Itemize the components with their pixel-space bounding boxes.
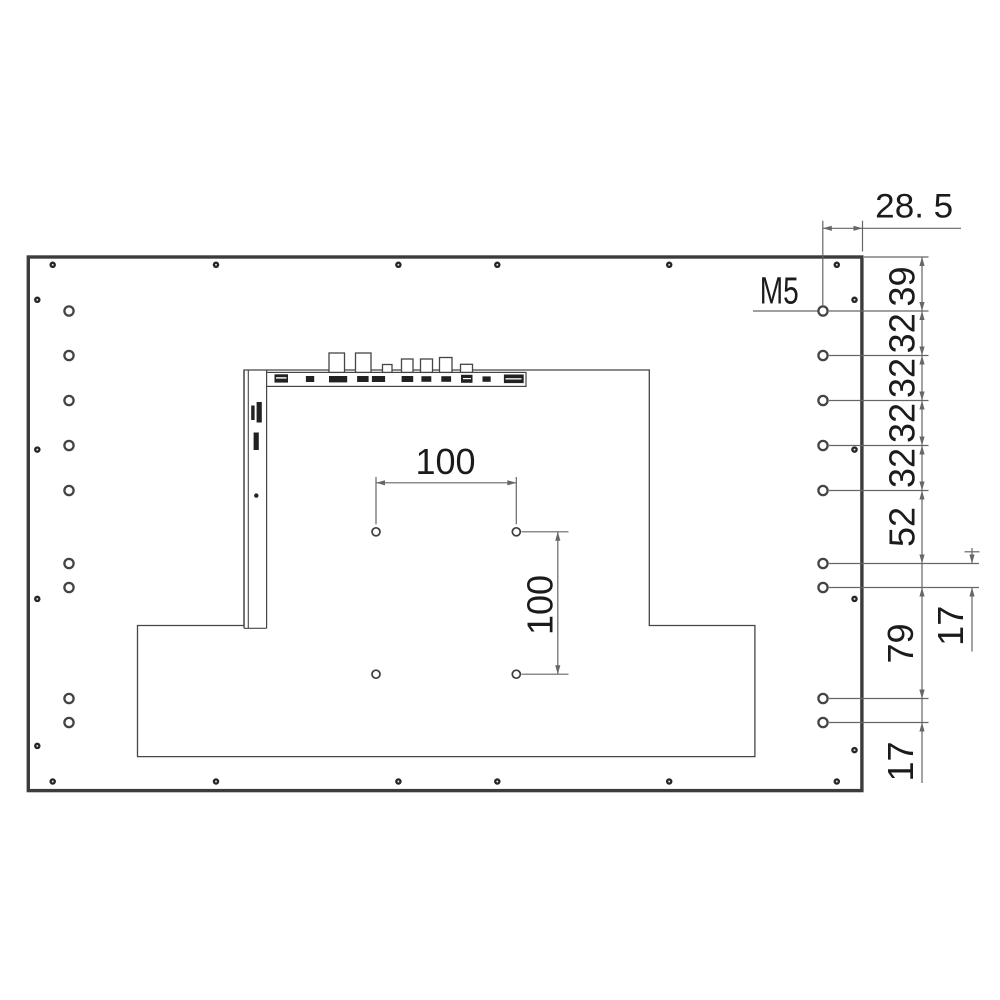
svg-text:17: 17 [880,741,921,781]
svg-text:79: 79 [880,623,921,663]
svg-text:39: 39 [881,266,922,306]
svg-text:17: 17 [930,606,971,646]
svg-text:32: 32 [882,448,923,488]
svg-text:32: 32 [882,358,923,398]
svg-text:M5: M5 [760,271,799,313]
svg-text:28. 5: 28. 5 [875,188,953,226]
svg-text:32: 32 [882,403,923,443]
svg-text:32: 32 [882,313,923,353]
svg-text:100: 100 [415,441,475,482]
svg-text:52: 52 [882,507,923,547]
svg-text:100: 100 [519,575,560,635]
